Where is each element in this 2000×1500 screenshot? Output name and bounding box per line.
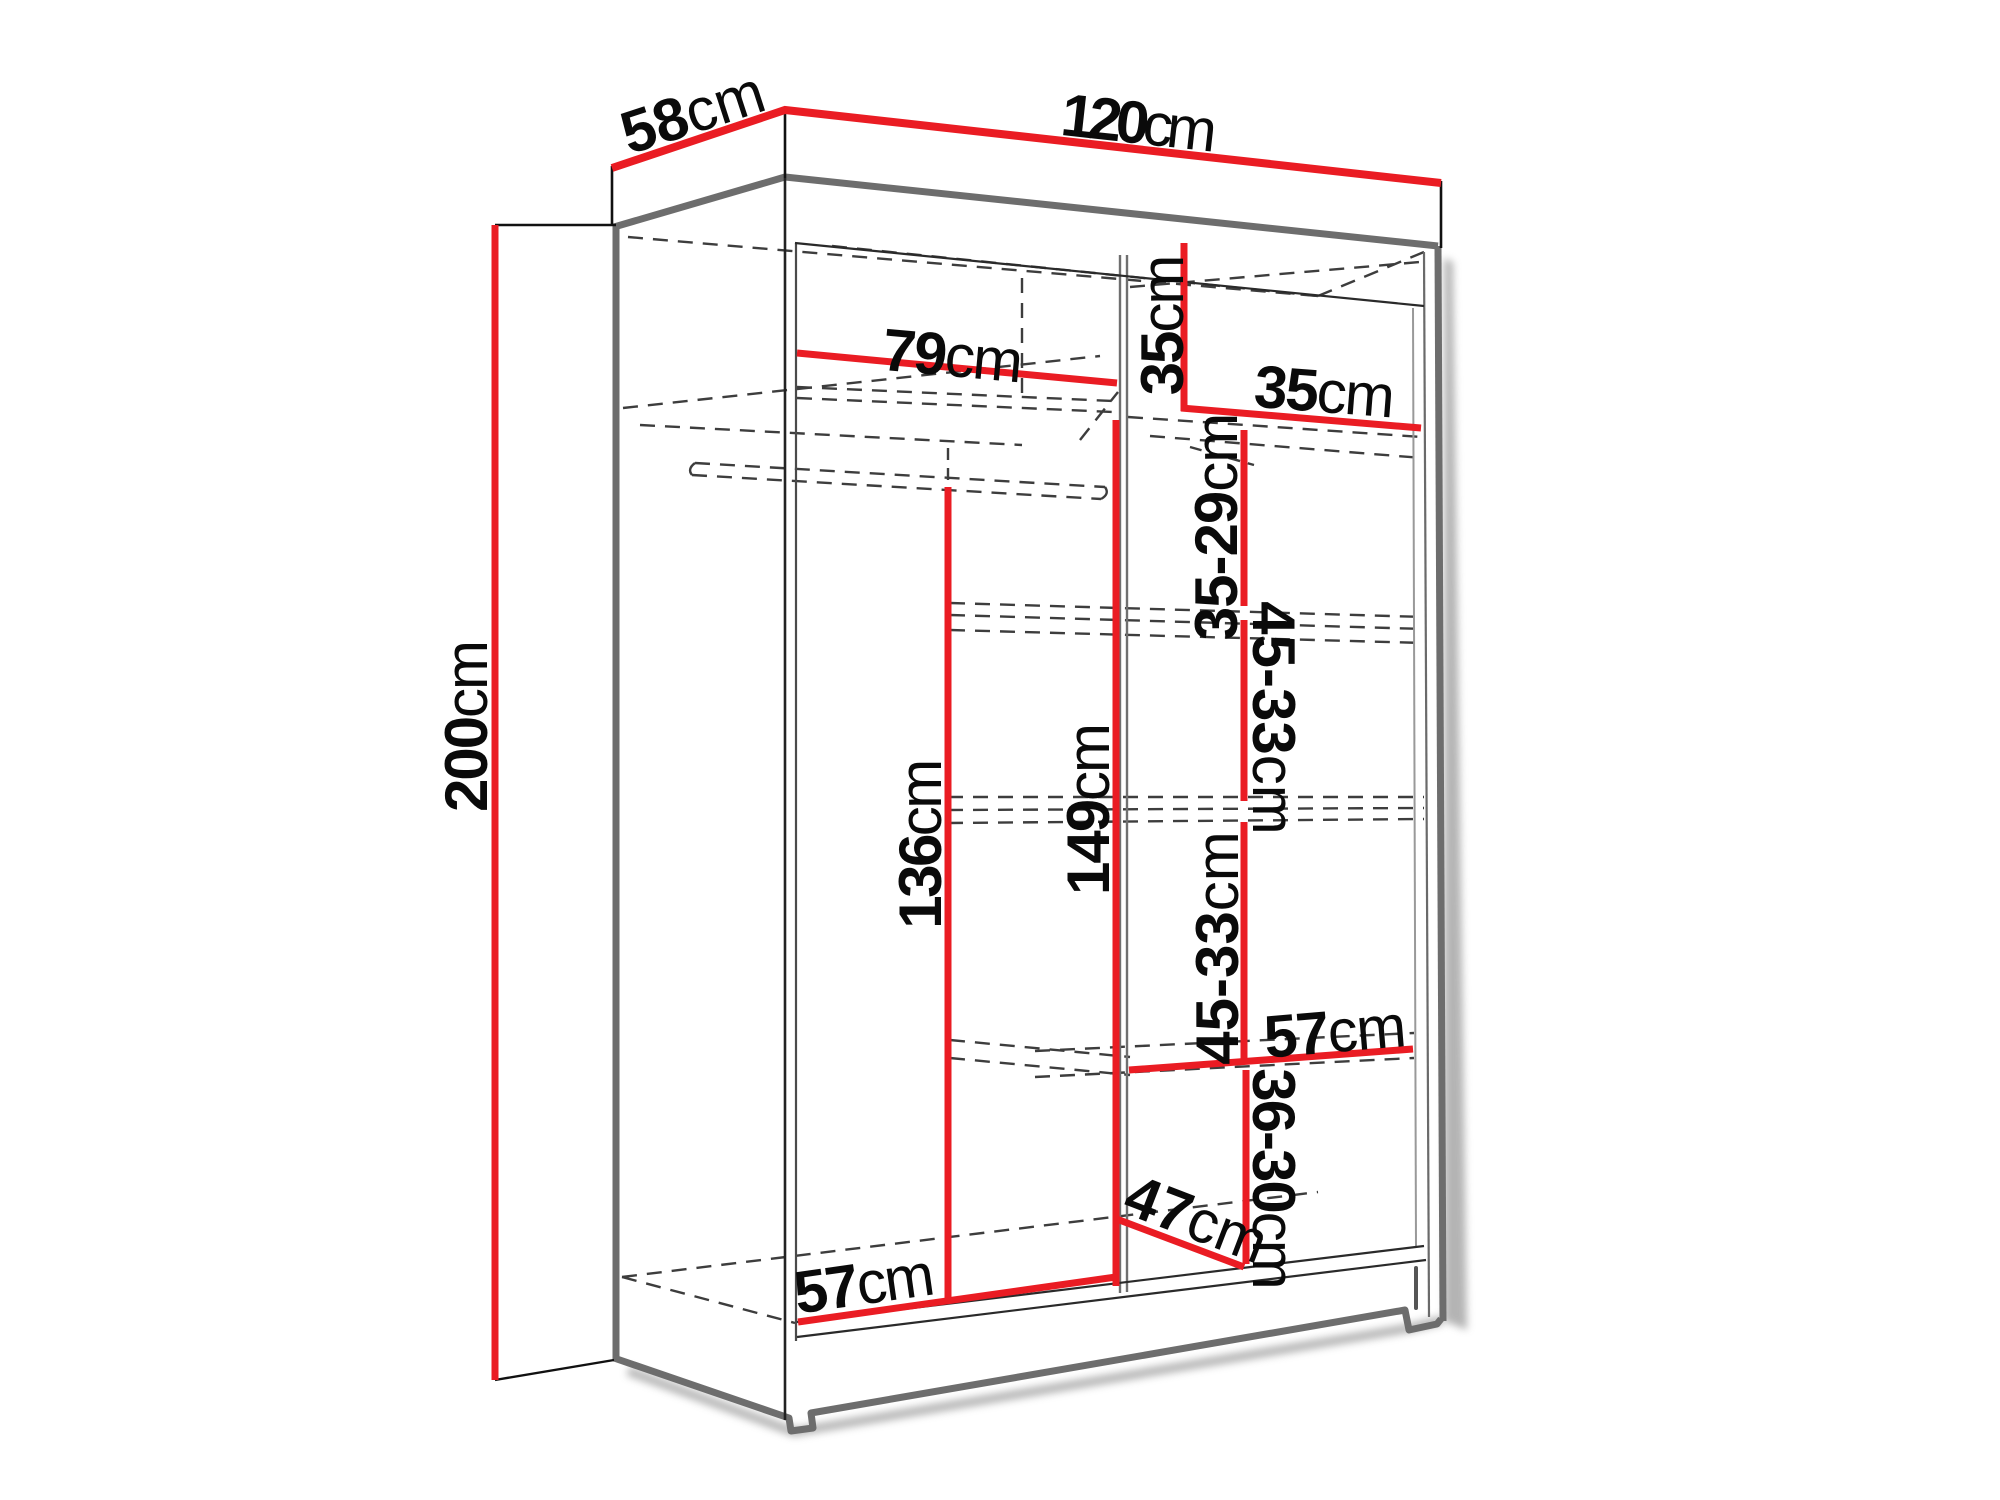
svg-text:35cm: 35cm	[1252, 353, 1396, 431]
svg-text:149cm: 149cm	[1055, 725, 1122, 895]
svg-text:57cm: 57cm	[1261, 992, 1407, 1071]
svg-text:45-33cm: 45-33cm	[1184, 831, 1251, 1064]
svg-text:35cm: 35cm	[1129, 257, 1196, 396]
svg-text:35-29cm: 35-29cm	[1183, 414, 1250, 640]
svg-text:136cm: 136cm	[887, 761, 954, 929]
svg-text:79cm: 79cm	[880, 316, 1024, 395]
svg-text:45-33cm: 45-33cm	[1240, 601, 1307, 834]
svg-text:200cm: 200cm	[433, 642, 500, 812]
